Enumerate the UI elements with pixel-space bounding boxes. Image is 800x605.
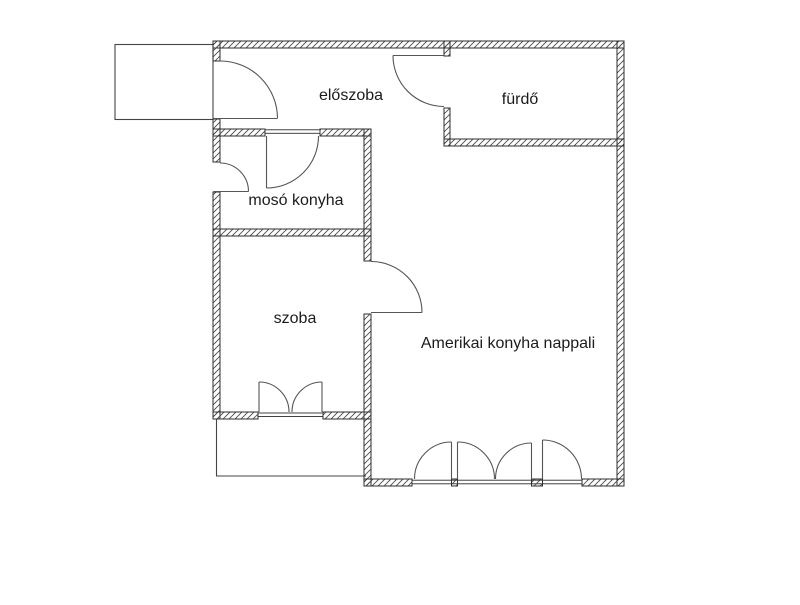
balcony-below-szoba [217,419,367,476]
furdo-door [393,56,444,107]
terrace-door-leaf2-arc [458,442,495,479]
szoba-balcony-double-door [259,382,322,412]
balcony-top-left [115,45,213,120]
wall-top [213,41,624,48]
wall-divider1-right [320,129,371,136]
floor-plan-page: előszoba fürdő mosó konyha szoba Amerika… [0,0,800,600]
wall-post-nappali-doors-left [452,479,458,486]
utility-door-left [214,163,249,192]
wall-nappali-bottom-left [364,479,412,486]
moso-door-arc [267,136,319,188]
wall-szoba-bottom-left [213,412,258,419]
sill-szoba-balcony-door [258,413,323,417]
room-label-szoba: szoba [274,310,317,327]
wall-furdo-bottom [444,139,624,146]
floor-plan-svg: előszoba fürdő mosó konyha szoba Amerika… [0,0,800,600]
terrace-door-leaf3-arc [496,443,532,479]
wall-middle-vertical-upper [364,129,371,261]
wall-left-upper [213,41,220,61]
room-label-furdo: fürdő [502,91,539,108]
utility-door-arc [220,163,249,192]
szoba-balcony-door-left-arc [259,382,289,412]
wall-left-lower [213,192,220,419]
entrance-door [214,61,278,119]
sill-nappali-doors [412,480,582,484]
room-label-nappali: Amerikai konyha nappali [421,335,595,352]
szoba-balcony-door-right-arc [292,382,322,412]
szoba-nappali-door [371,262,422,313]
wall-divider1-left [213,129,265,136]
wall-post-nappali-doors-right [532,479,543,486]
wall-szoba-bottom-right [323,412,371,419]
nappali-terrace-doors [415,440,582,479]
room-label-eloszoba: előszoba [319,87,383,104]
room-label-moso-konyha: mosó konyha [248,192,343,209]
wall-nappali-bottom-right [582,479,624,486]
furdo-door-arc [393,56,444,107]
sill-moso-door [265,130,320,134]
entrance-door-arc [220,61,278,119]
wall-right [617,41,624,486]
wall-middle-vertical-lower [364,314,371,486]
terrace-door-leaf1-arc [415,442,452,479]
wall-left-middle [213,119,220,162]
szoba-door-arc [371,262,422,313]
moso-konyha-door [267,136,319,188]
wall-furdo-left-upper [444,41,450,56]
terrace-door-leaf4-arc [543,440,582,479]
wall-divider2 [213,229,371,236]
